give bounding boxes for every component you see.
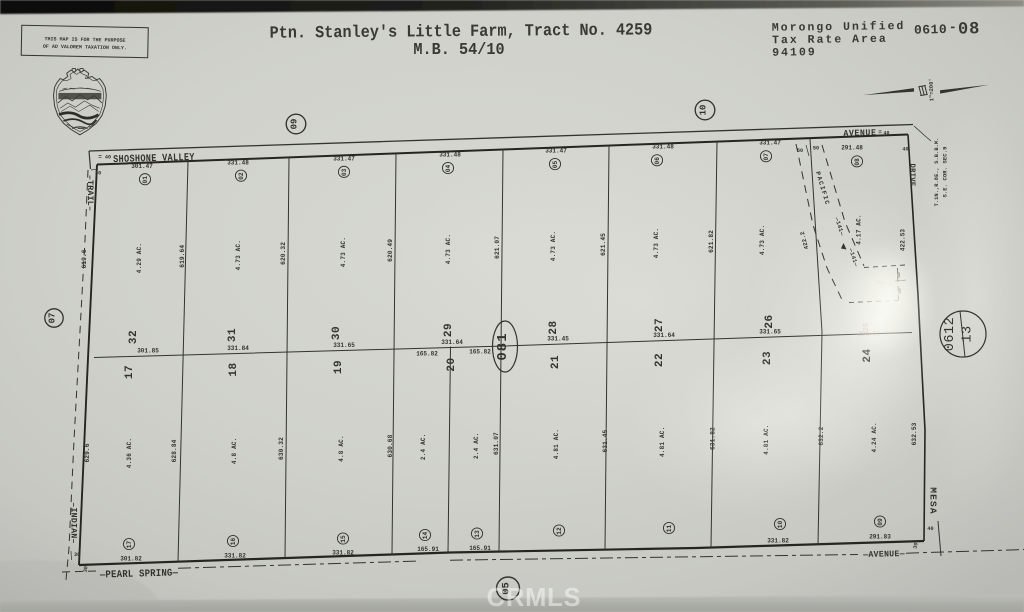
svg-text:30: 30 (331, 326, 343, 340)
svg-text:15: 15 (340, 535, 347, 543)
svg-text:619.64: 619.64 (179, 245, 186, 268)
svg-text:630.32: 630.32 (278, 437, 285, 460)
svg-text:=: = (98, 154, 102, 161)
svg-text:619.6: 619.6 (81, 249, 88, 268)
svg-text:628.84: 628.84 (171, 439, 178, 462)
svg-text:4.36 AC.: 4.36 AC. (126, 438, 133, 468)
svg-text:0612: 0612 (943, 317, 958, 351)
svg-text:631.45: 631.45 (602, 429, 609, 452)
svg-text:31: 31 (227, 328, 239, 342)
svg-text:331.48: 331.48 (652, 144, 674, 151)
svg-text:632.53: 632.53 (911, 422, 918, 445)
svg-text:M.B. 54/10: M.B. 54/10 (413, 40, 504, 59)
svg-text:AVENUE: AVENUE (843, 128, 876, 139)
svg-text:26: 26 (764, 314, 776, 328)
svg-text:18: 18 (228, 362, 240, 376)
svg-text:04: 04 (445, 165, 452, 173)
svg-text:165.82: 165.82 (416, 351, 438, 358)
svg-text:22: 22 (654, 353, 666, 367)
svg-text:4.73 AC.: 4.73 AC. (550, 231, 557, 261)
svg-text:081: 081 (495, 332, 511, 360)
svg-text:DRIVE: DRIVE (908, 163, 916, 186)
svg-text:16: 16 (230, 538, 237, 546)
svg-text:32: 32 (128, 330, 140, 344)
svg-text:331.47: 331.47 (759, 140, 781, 147)
svg-text:13: 13 (961, 325, 976, 342)
svg-text:4.29 AC.: 4.29 AC. (136, 243, 143, 273)
svg-text:301.47: 301.47 (131, 163, 153, 170)
svg-text:08: 08 (854, 158, 861, 166)
svg-text:331.48: 331.48 (439, 151, 461, 158)
svg-text:09: 09 (877, 518, 884, 526)
svg-text:13: 13 (474, 530, 481, 538)
svg-text:331.65: 331.65 (759, 329, 781, 336)
svg-text:27: 27 (654, 318, 666, 332)
svg-text:165.82: 165.82 (469, 349, 491, 356)
svg-text:Tax Rate Area: Tax Rate Area (772, 33, 888, 48)
svg-text:40: 40 (927, 526, 933, 532)
svg-text:621.07: 621.07 (494, 236, 501, 259)
svg-text:331.47: 331.47 (545, 148, 567, 155)
svg-text:=: = (878, 129, 882, 136)
svg-text:291.83: 291.83 (869, 534, 891, 541)
svg-text:630.68: 630.68 (387, 434, 394, 457)
svg-text:620.49: 620.49 (387, 239, 394, 262)
svg-text:4.73 AC.: 4.73 AC. (445, 234, 452, 264)
svg-text:30: 30 (95, 171, 101, 177)
svg-text:—AVENUE—: —AVENUE— (862, 549, 906, 560)
svg-text:09: 09 (290, 119, 300, 130)
svg-text:19: 19 (333, 360, 345, 374)
svg-text:20: 20 (446, 357, 458, 371)
svg-text:29: 29 (443, 323, 455, 337)
svg-text:10: 10 (777, 521, 784, 529)
svg-text:301.85: 301.85 (137, 347, 159, 354)
svg-text:07: 07 (763, 153, 770, 161)
svg-text:14: 14 (422, 532, 429, 540)
svg-text:331.47: 331.47 (333, 155, 355, 162)
svg-text:4.81 AC.: 4.81 AC. (553, 429, 560, 459)
svg-text:–INDIAN–: –INDIAN– (69, 502, 78, 543)
svg-text:4.73 AC.: 4.73 AC. (653, 228, 660, 258)
svg-text:4.73 AC.: 4.73 AC. (235, 240, 242, 270)
svg-text:30: 30 (74, 552, 80, 558)
svg-text:40: 40 (105, 155, 111, 161)
svg-text:50: 50 (813, 146, 819, 152)
svg-text:CRMLS: CRMLS (487, 584, 582, 612)
svg-text:08: 08 (958, 20, 981, 40)
svg-text:621.82: 621.82 (708, 230, 715, 253)
svg-text:SHOSHONE VALLEY: SHOSHONE VALLEY (113, 151, 195, 165)
svg-text:631.07: 631.07 (493, 432, 500, 455)
svg-text:30: 30 (83, 566, 90, 573)
svg-text:165.91: 165.91 (417, 546, 439, 553)
svg-text:331.65: 331.65 (333, 342, 355, 349)
svg-text:40: 40 (883, 131, 889, 137)
svg-text:-: - (949, 20, 957, 35)
svg-text:291.48: 291.48 (841, 145, 863, 152)
svg-text:10: 10 (699, 105, 709, 116)
svg-text:02: 02 (238, 172, 245, 180)
svg-text:331.64: 331.64 (653, 332, 675, 339)
svg-text:1"=200': 1"=200' (928, 78, 936, 101)
svg-text:06: 06 (654, 157, 661, 165)
svg-text:165.91: 165.91 (469, 545, 491, 552)
svg-text:MESA: MESA (928, 487, 939, 515)
svg-text:—PEARL SPRING—: —PEARL SPRING— (99, 567, 179, 581)
svg-text:2.4 AC.: 2.4 AC. (473, 432, 480, 459)
svg-text:2.4 AC.: 2.4 AC. (420, 434, 427, 461)
svg-text:40: 40 (902, 147, 908, 153)
svg-text:331.82: 331.82 (767, 538, 789, 545)
svg-text:331.64: 331.64 (441, 339, 463, 346)
svg-text:12: 12 (556, 527, 563, 535)
svg-text:S.E. COR. SEC.9: S.E. COR. SEC.9 (942, 146, 949, 197)
svg-text:–TRAIL–: –TRAIL– (85, 175, 94, 211)
svg-text:4.17 AC.: 4.17 AC. (856, 214, 863, 244)
svg-text:50: 50 (797, 148, 803, 154)
svg-text:620.32: 620.32 (280, 242, 287, 265)
svg-text:05: 05 (552, 161, 559, 169)
svg-text:28: 28 (548, 320, 560, 334)
svg-text:07: 07 (48, 313, 58, 324)
svg-text:4.73 AC.: 4.73 AC. (759, 225, 766, 255)
svg-text:17: 17 (126, 541, 133, 549)
svg-text:17: 17 (124, 365, 136, 379)
svg-text:4.8 AC.: 4.8 AC. (338, 435, 345, 462)
svg-text:621.45: 621.45 (600, 233, 607, 256)
svg-text:4.73 AC.: 4.73 AC. (340, 237, 347, 267)
svg-text:331.82: 331.82 (332, 550, 354, 557)
svg-text:T.1N.,R.8E., S.B.B.M.: T.1N.,R.8E., S.B.B.M. (934, 138, 940, 207)
svg-text:11: 11 (666, 525, 673, 533)
svg-text:01: 01 (142, 176, 149, 184)
svg-text:422.53: 422.53 (900, 229, 907, 252)
svg-text:4.8 AC.: 4.8 AC. (231, 437, 238, 464)
svg-text:94109: 94109 (772, 46, 817, 60)
svg-text:03: 03 (341, 168, 348, 176)
svg-text:331.84: 331.84 (227, 345, 249, 352)
svg-text:4.81 AC.: 4.81 AC. (659, 427, 666, 457)
svg-text:331.48: 331.48 (227, 159, 249, 166)
svg-text:331.82: 331.82 (224, 553, 246, 560)
svg-text:629.6: 629.6 (84, 443, 91, 462)
svg-text:331.45: 331.45 (547, 336, 569, 343)
svg-text:0610: 0610 (914, 22, 948, 38)
svg-text:21: 21 (550, 355, 562, 369)
svg-text:301.82: 301.82 (120, 556, 142, 563)
